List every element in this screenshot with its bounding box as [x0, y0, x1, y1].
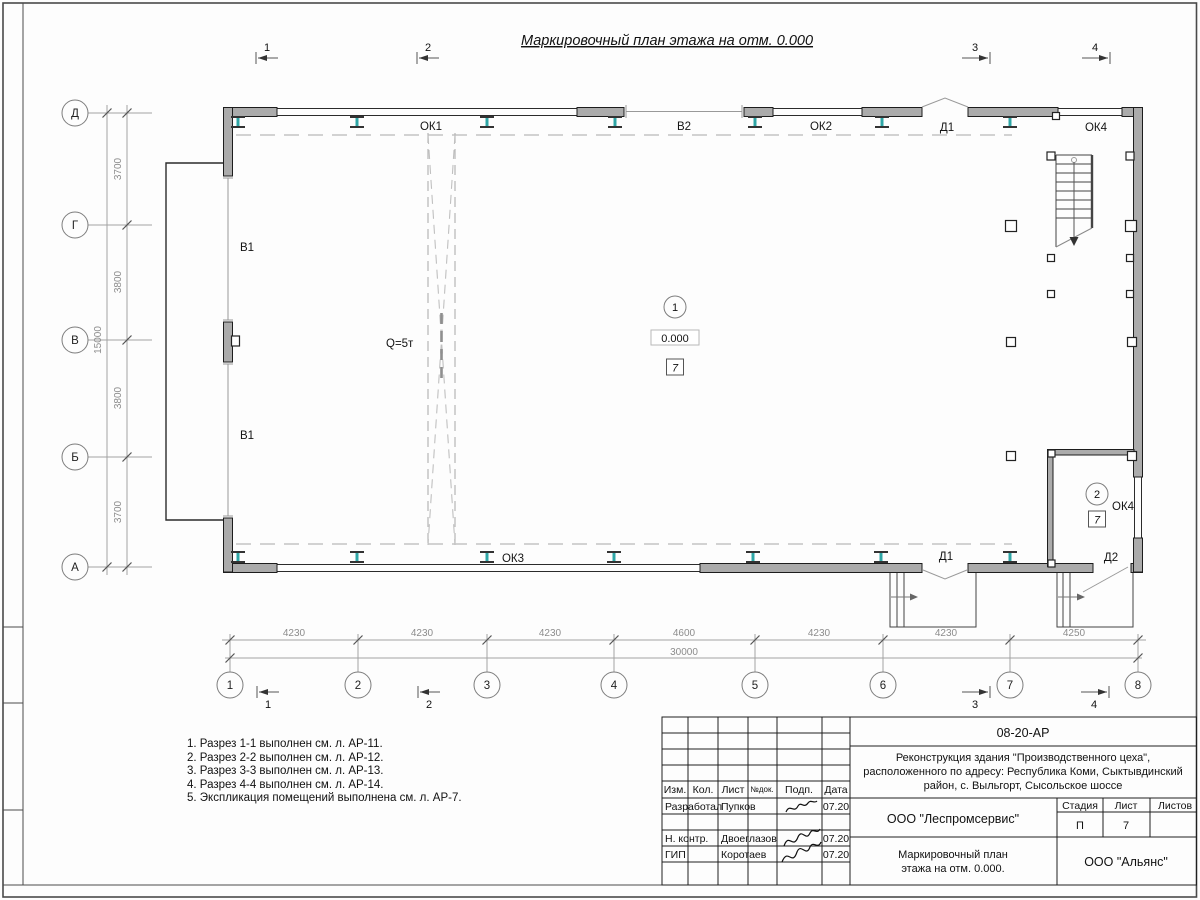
- axis-bubble-5: 5: [752, 680, 758, 692]
- section-mark-3-bottom: 3: [972, 699, 978, 711]
- role-gip: ГИП: [665, 849, 686, 861]
- room1-elevation: 0.000: [661, 333, 689, 345]
- dim-span-1-2: 4230: [283, 628, 306, 639]
- label-ok3: ОК3: [502, 553, 524, 565]
- label-v1-upper: В1: [240, 242, 254, 254]
- role-gip-name: Коротаев: [721, 849, 767, 861]
- drawing-title-line2: этажа на отм. 0.000.: [901, 863, 1004, 875]
- floor-plan-svg: Маркировочный план этажа на отм. 0.000: [0, 0, 1200, 900]
- label-ok4-top: ОК4: [1085, 122, 1108, 134]
- axis-bubble-8: 8: [1135, 680, 1141, 692]
- role-developer-name: Пупков: [721, 801, 756, 813]
- role-ncontrol-name: Двоеглазов: [721, 833, 777, 845]
- note-5: 5. Экспликация помещений выполнена см. л…: [187, 792, 462, 804]
- role-developer-date: 07.20: [823, 801, 849, 813]
- dim-3800-lower: 3800: [113, 386, 124, 409]
- stair-top-right: [1056, 155, 1092, 247]
- dim-15000-total: 15000: [93, 326, 104, 354]
- label-crane-capacity: Q=5т: [386, 338, 414, 350]
- role-gip-date: 07.20: [823, 849, 849, 861]
- section-mark-1-top: 1: [264, 42, 270, 54]
- signature-developer: [786, 801, 817, 812]
- company-name: ООО "Альянс": [1084, 855, 1168, 869]
- axis-bubble-7: 7: [1007, 680, 1013, 692]
- note-4: 4. Разрез 4-4 выполнен см. л. АР-14.: [187, 779, 384, 791]
- dim-30000-total: 30000: [670, 647, 698, 658]
- drawing-sheet: Маркировочный план этажа на отм. 0.000: [0, 0, 1200, 900]
- room2-number: 2: [1094, 489, 1100, 501]
- axis-bubble-b: Б: [71, 452, 79, 464]
- section-mark-2-bottom: 2: [426, 699, 432, 711]
- axis-grid-left: Д Г В Б А 3700 3800 3800 3700 15000: [62, 100, 152, 580]
- label-v2: В2: [677, 121, 691, 133]
- col-ndok: №док.: [750, 785, 773, 794]
- dim-span-3-4: 4230: [539, 628, 562, 639]
- label-ok2: ОК2: [810, 121, 832, 133]
- pilaster-axis-v: [232, 336, 240, 346]
- project-name-line2: расположенного по адресу: Республика Ком…: [863, 766, 1183, 778]
- project-name-line1: Реконструкция здания "Производственного …: [896, 752, 1150, 764]
- title-block: 08-20-АР Реконструкция здания "Производс…: [662, 717, 1197, 885]
- dim-3800-upper: 3800: [113, 270, 124, 293]
- steel-columns: [231, 117, 1017, 562]
- role-developer: Разработал: [665, 801, 722, 813]
- section-mark-4-top: 4: [1092, 42, 1098, 54]
- dim-span-2-3: 4230: [411, 628, 434, 639]
- room1-finish: 7: [672, 363, 679, 375]
- square-columns: [1006, 113, 1137, 461]
- sheet-header: Лист: [1115, 800, 1138, 812]
- project-name-line3: район, с. Выльгорт, Сысольское шоссе: [924, 780, 1123, 792]
- tambour-wall-left: [1048, 450, 1054, 567]
- note-2: 2. Разрез 2-2 выполнен см. л. АР-12.: [187, 752, 384, 764]
- axis-bubble-2: 2: [355, 680, 361, 692]
- section-mark-1-bottom: 1: [265, 699, 271, 711]
- label-ok4-room: ОК4: [1112, 501, 1135, 513]
- label-d2: Д2: [1104, 552, 1118, 564]
- label-d1-bottom: Д1: [939, 551, 953, 563]
- room2-finish: 7: [1094, 515, 1101, 527]
- doc-number: 08-20-АР: [997, 726, 1050, 740]
- room-marker-1: 1 0.000 7: [651, 296, 699, 375]
- tambour-wall-top: [1048, 450, 1135, 456]
- notes-list: 1. Разрез 1-1 выполнен см. л. АР-11. 2. …: [187, 738, 462, 804]
- stage-header: Стадия: [1062, 800, 1098, 812]
- role-ncontrol-date: 07.20: [823, 833, 849, 845]
- dim-3700-bottom: 3700: [113, 500, 124, 523]
- col-data: Дата: [824, 784, 847, 796]
- entrance-porch-1: [890, 573, 976, 627]
- axis-bubble-6: 6: [880, 680, 886, 692]
- stair-down-arrow: [1070, 237, 1079, 246]
- axis-grid-bottom: 4230 4230 4230 4600 4230 4230 4250 30000…: [217, 628, 1151, 698]
- stage-value: П: [1076, 820, 1084, 832]
- sheets-header: Листов: [1158, 800, 1193, 812]
- door-d1-bottom-swing: [923, 570, 967, 579]
- section-marks: 1 2 3 4 1 2 3 4: [256, 42, 1110, 711]
- axis-bubble-1: 1: [227, 680, 233, 692]
- sheet-value: 7: [1123, 820, 1129, 832]
- room1-number: 1: [672, 302, 678, 314]
- label-ok1: ОК1: [420, 121, 442, 133]
- door-d1-top-swing: [922, 98, 968, 107]
- col-podp: Подп.: [785, 784, 813, 796]
- section-mark-4-bottom: 4: [1091, 699, 1097, 711]
- axis-bubble-v: В: [71, 335, 79, 347]
- room-marker-2: 2 7: [1086, 483, 1108, 527]
- axis-bubble-g: Г: [72, 220, 79, 232]
- dim-span-6-7: 4230: [935, 628, 958, 639]
- entrance-porch-2: [1057, 573, 1133, 627]
- axis-bubble-a: А: [71, 562, 79, 574]
- note-1: 1. Разрез 1-1 выполнен см. л. АР-11.: [187, 738, 383, 750]
- col-list: Лист: [722, 784, 745, 796]
- crane-runway: [236, 133, 1012, 545]
- section-mark-3-top: 3: [972, 42, 978, 54]
- dim-span-7-8: 4250: [1063, 628, 1086, 639]
- label-d1-top: Д1: [940, 122, 954, 134]
- section-mark-2-top: 2: [425, 42, 431, 54]
- dim-span-4-5: 4600: [673, 628, 696, 639]
- axis-bubble-3: 3: [484, 680, 490, 692]
- role-ncontrol: Н. контр.: [665, 833, 708, 845]
- org-name: ООО "Леспромсервис": [887, 812, 1019, 826]
- signature-ncontrol: [784, 829, 820, 846]
- note-3: 3. Разрез 3-3 выполнен см. л. АР-13.: [187, 765, 384, 777]
- dim-3700-top: 3700: [113, 157, 124, 180]
- dim-span-5-6: 4230: [808, 628, 831, 639]
- label-v1-lower: В1: [240, 430, 254, 442]
- axis-bubble-d: Д: [71, 108, 79, 120]
- sheet-title: Маркировочный план этажа на отм. 0.000: [521, 33, 813, 49]
- drawing-title-line1: Маркировочный план: [898, 849, 1008, 861]
- axis-bubble-4: 4: [611, 680, 618, 692]
- annex-outline: [166, 163, 224, 520]
- col-kol: Кол.: [693, 784, 714, 796]
- signature-gip: [782, 842, 821, 862]
- col-izm: Изм.: [664, 784, 687, 796]
